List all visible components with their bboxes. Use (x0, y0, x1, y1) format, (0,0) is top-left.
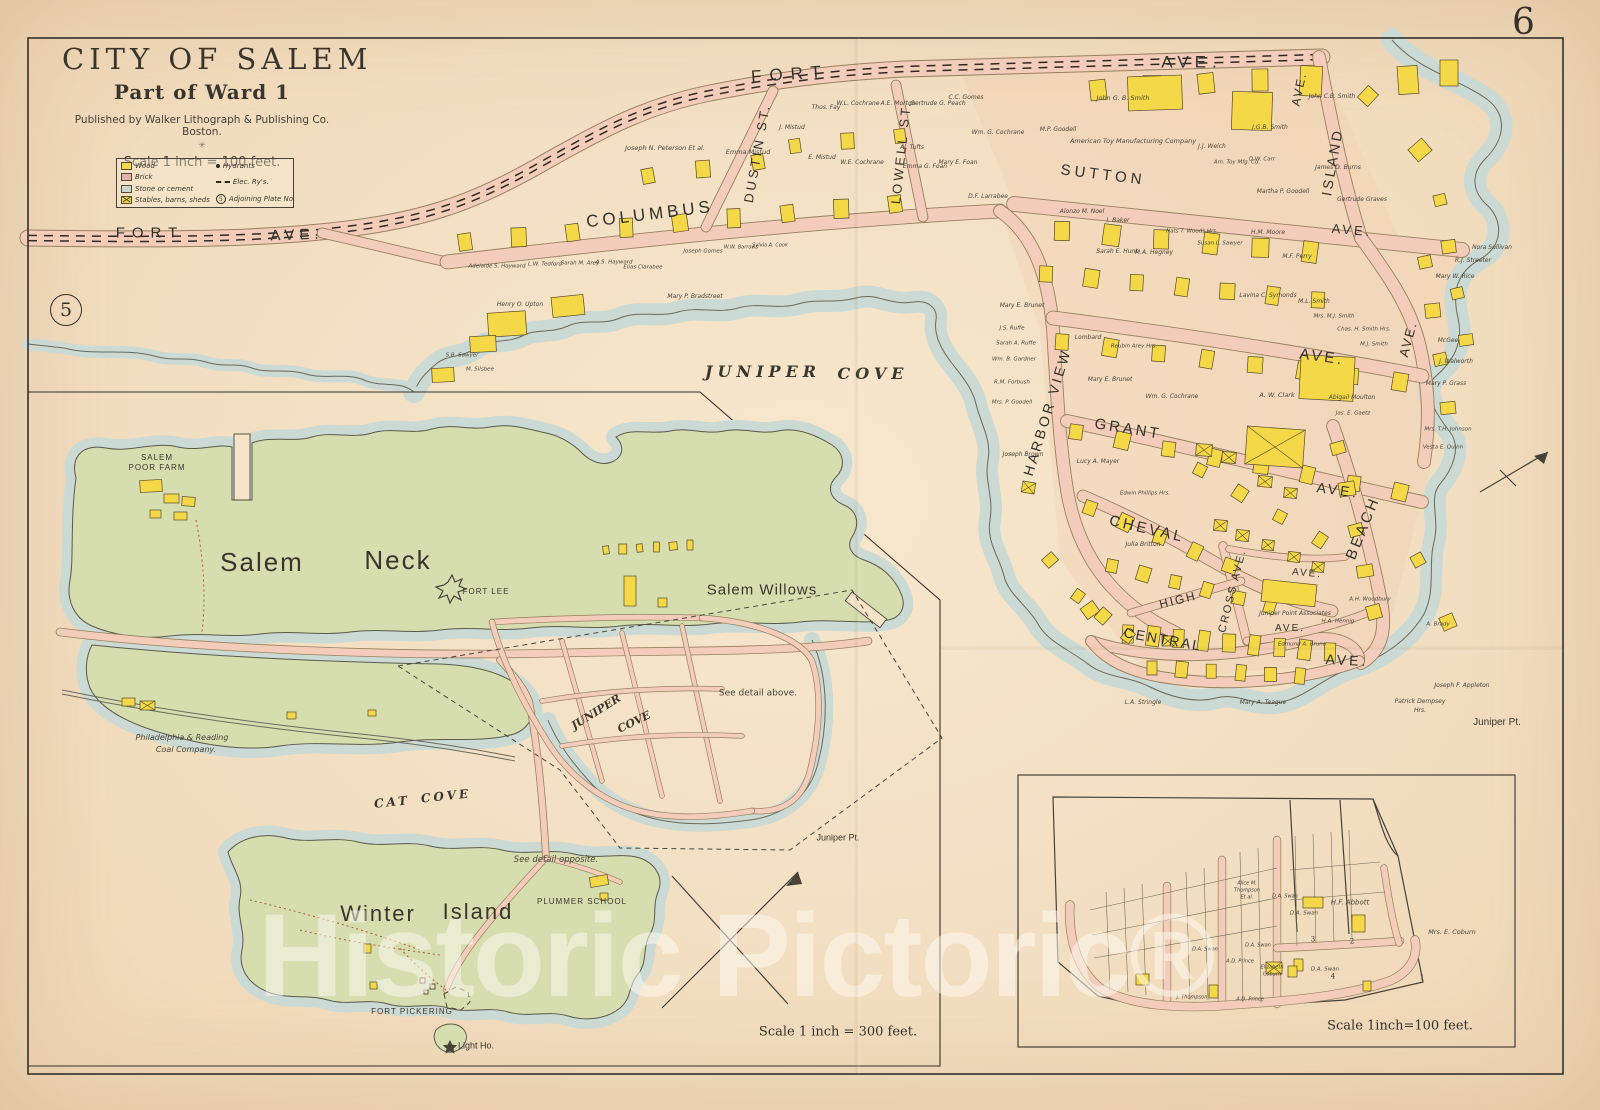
building (751, 154, 765, 171)
building (182, 497, 196, 507)
building (1247, 356, 1263, 373)
legend-item-hydrants: Hydrants (216, 162, 295, 170)
building (1299, 65, 1323, 96)
building (1433, 352, 1448, 366)
building (887, 195, 902, 214)
building (658, 598, 667, 607)
building (727, 209, 741, 228)
building (687, 540, 693, 550)
building (551, 294, 585, 317)
building (603, 546, 610, 555)
building (1252, 238, 1270, 258)
legend-item-adjoining-plate: 5 Adjoining Plate No. (216, 194, 295, 204)
building (1219, 283, 1235, 300)
building (1265, 286, 1281, 306)
building (789, 138, 802, 153)
building (150, 510, 161, 518)
legend-column-materials: Wood Brick Stone or cement Stables, barn… (121, 162, 210, 204)
title-block: CITY OF SALEM Part of Ward 1 Published b… (62, 42, 342, 170)
building (487, 311, 527, 338)
legend-label: Elec. Ry's. (233, 178, 269, 186)
building (1301, 241, 1319, 264)
building (653, 542, 659, 552)
building (894, 128, 907, 143)
atlas-page: FORTAVE.FORTAVE.COLUMBUSDUSTIN ST.LOWELL… (0, 0, 1600, 1110)
electric-railway-icon (216, 181, 230, 183)
legend-label: Adjoining Plate No. (229, 195, 295, 203)
building (669, 542, 678, 551)
legend-item-stone: Stone or cement (121, 185, 210, 193)
building (432, 367, 455, 382)
building (1145, 625, 1161, 647)
building (619, 218, 633, 237)
building (1152, 345, 1166, 362)
building (1294, 668, 1306, 685)
building (624, 576, 636, 606)
building (1417, 255, 1432, 269)
building (1161, 441, 1176, 458)
ornament: ✳ (62, 140, 342, 151)
building (1235, 664, 1247, 681)
building (1127, 75, 1182, 111)
building (1102, 224, 1122, 247)
building (1408, 138, 1432, 162)
building (1303, 897, 1323, 908)
building (368, 710, 376, 716)
building (1231, 91, 1272, 130)
legend-item-stables: Stables, barns, sheds (121, 196, 210, 204)
building (1130, 274, 1144, 291)
building (1202, 232, 1220, 255)
legend-label: Hydrants (223, 162, 255, 170)
building (1069, 424, 1084, 441)
building (833, 199, 849, 219)
legend-box: Wood Brick Stone or cement Stables, barn… (116, 158, 294, 208)
building (1441, 239, 1457, 254)
building (1231, 590, 1246, 605)
building (1055, 334, 1069, 351)
building (1288, 966, 1297, 977)
building (470, 335, 497, 352)
building (671, 214, 688, 233)
building (287, 712, 296, 719)
plate-circle-icon: 5 (216, 194, 226, 204)
legend-label: Wood (135, 162, 155, 170)
salem-neck-land (69, 426, 903, 638)
building (457, 233, 472, 252)
building (1169, 575, 1182, 590)
building (1391, 372, 1409, 392)
building (1039, 266, 1053, 283)
building (1458, 334, 1473, 347)
building (1089, 79, 1107, 101)
building (511, 227, 527, 247)
building (1174, 277, 1190, 297)
building (1338, 481, 1356, 497)
building (1105, 559, 1118, 574)
legend-item-elec-ry: Elec. Ry's. (216, 178, 295, 186)
building (1352, 915, 1365, 932)
building (1299, 355, 1355, 402)
building (1311, 292, 1325, 309)
building (619, 544, 627, 554)
building (1199, 349, 1215, 369)
fold-crease-vertical (853, 38, 861, 1074)
building (1440, 401, 1456, 414)
building (1397, 65, 1419, 94)
building (695, 160, 710, 178)
brick-swatch (121, 173, 132, 181)
building (1363, 981, 1371, 991)
building (1041, 552, 1058, 569)
building (1440, 60, 1458, 86)
building (1357, 85, 1378, 106)
building (1153, 230, 1169, 249)
hydrant-icon (216, 164, 220, 168)
building (565, 223, 580, 242)
building (1175, 661, 1189, 678)
building (1356, 564, 1374, 578)
building (1450, 287, 1464, 301)
building (1197, 72, 1215, 94)
building (1433, 193, 1447, 207)
legend-label: Brick (135, 173, 153, 181)
watermark: Historic Pictoric® (258, 888, 1214, 1024)
building (1147, 661, 1157, 675)
legend-label: Stables, barns, sheds (135, 196, 210, 204)
building (636, 544, 643, 553)
building (1424, 303, 1440, 318)
legend-label: Stone or cement (135, 185, 193, 193)
building (1054, 221, 1070, 240)
building (1252, 69, 1268, 91)
legend-item-wood: Wood (121, 162, 210, 170)
building (164, 494, 179, 503)
map-title: CITY OF SALEM (62, 42, 342, 76)
building (1206, 664, 1216, 678)
building (1101, 338, 1119, 358)
neck-wharf (234, 434, 250, 500)
building (641, 168, 655, 185)
publisher-line: Published by Walker Lithograph & Publish… (62, 114, 342, 138)
stone-swatch (121, 185, 132, 193)
map-subtitle: Part of Ward 1 (62, 80, 342, 104)
plate-number: 6 (1512, 2, 1535, 43)
legend-item-brick: Brick (121, 173, 210, 181)
building (1439, 613, 1457, 631)
fold-crease-horizontal (940, 645, 1563, 653)
adjoining-plate-badge: 5 (50, 294, 82, 326)
building (1083, 268, 1100, 288)
building (174, 512, 187, 520)
legend-column-symbols: Hydrants Elec. Ry's. 5 Adjoining Plate N… (216, 162, 295, 204)
building (780, 204, 795, 223)
building (122, 698, 135, 706)
stables-swatch (121, 196, 132, 204)
building (1264, 667, 1276, 681)
wood-swatch (121, 162, 132, 170)
building (140, 479, 163, 492)
shore-arrow (1480, 452, 1548, 492)
